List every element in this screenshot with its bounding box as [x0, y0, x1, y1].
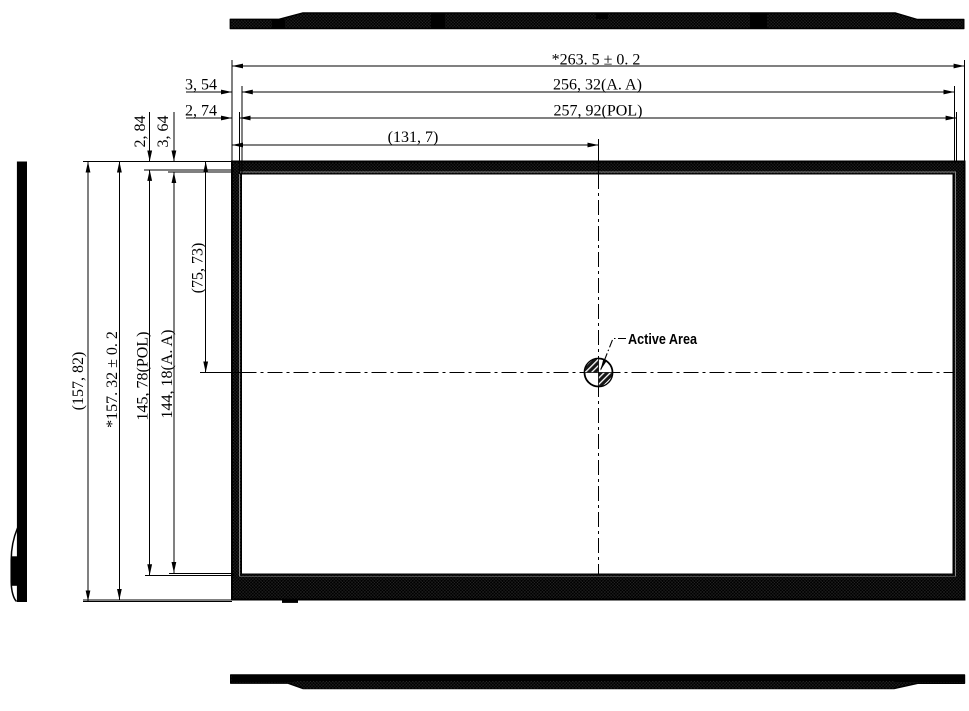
svg-text:(75, 73): (75, 73) [190, 243, 207, 294]
svg-text:(131, 7): (131, 7) [388, 129, 439, 146]
svg-text:2, 74: 2, 74 [185, 103, 217, 120]
svg-text:256, 32(A. A): 256, 32(A. A) [553, 77, 642, 94]
svg-text:145, 78(POL): 145, 78(POL) [135, 332, 152, 421]
svg-text:3, 54: 3, 54 [185, 77, 217, 94]
svg-text:Active Area: Active Area [628, 331, 698, 348]
svg-text:144, 18(A. A): 144, 18(A. A) [159, 330, 176, 419]
svg-text:2, 84: 2, 84 [132, 116, 149, 148]
svg-text:3, 64: 3, 64 [155, 116, 172, 148]
svg-text:*263. 5 ± 0. 2: *263. 5 ± 0. 2 [552, 52, 641, 69]
svg-text:(157, 82): (157, 82) [70, 352, 87, 411]
svg-text:*157. 32 ± 0. 2: *157. 32 ± 0. 2 [104, 331, 121, 428]
svg-text:257, 92(POL): 257, 92(POL) [554, 103, 643, 120]
